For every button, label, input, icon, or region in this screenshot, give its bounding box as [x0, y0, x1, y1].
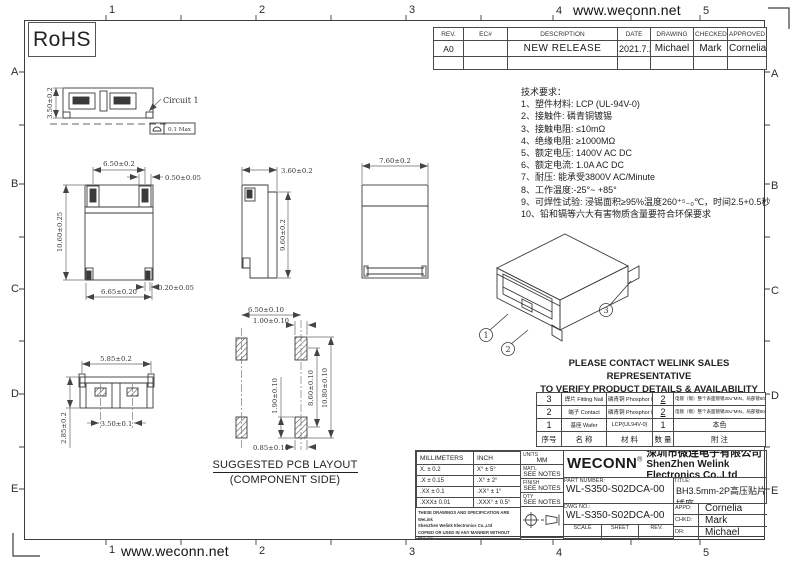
- scale-value: 1:1: [577, 537, 587, 539]
- tech-note-item: 3、接触电阻: ≤10mΩ: [521, 123, 767, 135]
- tol-col-inch: INCH: [474, 452, 522, 465]
- grid-col-label: 5: [703, 547, 709, 559]
- scale-sheet-rev-row: SCALE 1:1 SHEET 1/1 REV. A1: [564, 524, 673, 538]
- revision-empty-row: [434, 57, 767, 70]
- pcb-caption-line1: SUGGESTED PCB LAYOUT: [213, 459, 358, 473]
- revision-table: REV. EC# DESCRIPTION DATE DRAWING CHECKE…: [433, 27, 767, 70]
- grid-row-label: D: [11, 388, 19, 400]
- disclaimer: THESE DRAWINGS AND SPECIFICATION ARE WeL…: [415, 507, 521, 539]
- bom-row: 2 端子 Contact 磷青铜 Phosphor Bronze 2 电镀（锡）…: [537, 406, 766, 419]
- grid-col-label: 2: [259, 545, 265, 557]
- finish-value: SEE NOTES: [521, 485, 563, 492]
- tech-note-item: 7、耐压: 能承受3800V AC/Minute: [521, 171, 767, 183]
- tol-mm: .X ± 0.15: [417, 476, 474, 487]
- company-name-cn: 深圳市微连电子有限公司: [646, 450, 763, 459]
- tech-note-item: 5、额定电压: 1400V AC DC: [521, 147, 767, 159]
- grid-col-label: 2: [259, 4, 265, 16]
- grid-col-label: 5: [703, 5, 709, 17]
- dr-label: DR:: [673, 527, 699, 539]
- grid-row-label: C: [771, 285, 779, 297]
- units-cell: UNITS MM: [521, 451, 563, 465]
- title-block: MILLIMETERS INCH X. ± 0.2X° ± 5° .X ± 0.…: [415, 450, 765, 537]
- ec-header: EC#: [464, 28, 508, 41]
- scale-label: SCALE: [564, 525, 601, 531]
- company-header: WECONN® 深圳市微连电子有限公司 ShenZhen Welink Elec…: [563, 450, 767, 478]
- tolerance-table-cell: MILLIMETERS INCH X. ± 0.2X° ± 5° .X ± 0.…: [415, 450, 521, 508]
- part-number-value: WL-S350-S02DCA-00: [564, 484, 673, 495]
- grid-row-label: C: [11, 283, 19, 295]
- bom-table: 3 焊片 Fitting Nail 磷青铜 Phosphor Bronze 2 …: [536, 392, 766, 447]
- rev-value: A1: [652, 537, 661, 539]
- matl-value: SEE NOTES: [521, 471, 563, 478]
- tol-inch: X° ± 5°: [474, 465, 522, 476]
- matl-cell: MAT'L SEE NOTES: [521, 465, 563, 479]
- bom-row: 1 基座 Wafer LCP(UL94V-0) 1 本色: [537, 419, 766, 432]
- bom-no: 2: [537, 406, 562, 419]
- bom-remark-header: 附 注: [674, 432, 766, 447]
- grid-row-label: E: [11, 483, 18, 495]
- dwg-no-cell: DWG NO.: WL-S350-S02DCA-00 SCALE 1:1 SHE…: [563, 503, 674, 539]
- approved-value: Cornelia: [728, 41, 767, 57]
- qty-value: SEE NOTES: [521, 499, 563, 506]
- grid-col-label: 4: [556, 5, 562, 17]
- grid-row-label: B: [771, 180, 778, 192]
- tech-note-item: 6、额定电流: 1.0A AC DC: [521, 159, 767, 171]
- dwg-no-value: WL-S350-S02DCA-00: [564, 510, 673, 521]
- rev-header: REV.: [434, 28, 464, 41]
- grid-col-label: 4: [556, 547, 562, 559]
- appd-label: APPD:: [673, 503, 699, 514]
- tech-note-item: 2、接触件: 磷青铜镀锡: [521, 110, 767, 122]
- grid-row-label: E: [771, 485, 778, 497]
- tol-col-mm: MILLIMETERS: [417, 452, 474, 465]
- bom-no: 1: [537, 419, 562, 432]
- rohs-badge: RoHS: [28, 22, 96, 57]
- disclaimer-line: THESE DRAWINGS AND SPECIFICATION ARE WeL…: [418, 510, 518, 523]
- title-cell: TITLE: BH3.5mm-2P高压贴片插座: [673, 477, 767, 504]
- units-column: UNITS MM MAT'L SEE NOTES FINISH SEE NOTE…: [520, 450, 564, 538]
- bom-qty: 1: [653, 419, 674, 432]
- bom-remark: 电镀（锡）整个表面镀锡30u″MIN，局部镀80u″MIN: [674, 393, 766, 406]
- tech-note-item: 8、工作温度:-25°~ +85°: [521, 184, 767, 196]
- revision-header-row: REV. EC# DESCRIPTION DATE DRAWING CHECKE…: [434, 28, 767, 41]
- bom-name: 端子 Contact: [562, 406, 607, 419]
- dr-value: Michael: [699, 527, 767, 539]
- bom-remark: 本色: [674, 419, 766, 432]
- rev-label: REV.: [639, 525, 674, 531]
- company-name-en: ShenZhen Welink Electronics Co.,Ltd: [646, 459, 763, 479]
- approved-header: APPROVED: [728, 28, 767, 41]
- technical-notes: 技术要求： 1、塑件材料: LCP (UL-94V-0) 2、接触件: 磷青铜镀…: [521, 86, 767, 220]
- qty-cell: QTY SEE NOTES: [521, 493, 563, 507]
- bom-name-header: 名 称: [562, 432, 607, 447]
- tech-note-item: 9、可焊性试验: 浸锡面积≥95%温度260⁺⁵₋₀℃，时间2.5+0.5秒: [521, 196, 767, 208]
- third-angle-projection-icon: [522, 511, 562, 529]
- grid-row-label: A: [771, 68, 778, 80]
- units-value: MM: [521, 457, 563, 464]
- sales-notice: PLEASE CONTACT WELINK SALES REPRESENTATI…: [532, 357, 766, 396]
- tolerance-table: MILLIMETERS INCH X. ± 0.2X° ± 5° .X ± 0.…: [416, 451, 521, 508]
- disclaimer-line: COPIED OR USED IN ANY MANNER WITHOUT WeL…: [418, 530, 518, 539]
- grid-row-label: A: [11, 66, 18, 78]
- tech-notes-title: 技术要求：: [521, 86, 767, 98]
- finish-cell: FINISH SEE NOTES: [521, 479, 563, 493]
- bom-qty: 2: [653, 406, 674, 419]
- part-number-cell: PART NUMBER: WL-S350-S02DCA-00: [563, 477, 674, 504]
- grid-col-label: 1: [109, 4, 115, 16]
- signatures: APPD: Cornelia CHKD: Mark DR: Michael: [673, 503, 767, 539]
- bom-no: 3: [537, 393, 562, 406]
- registered-mark-icon: ®: [637, 457, 642, 464]
- rev-value: A0: [434, 41, 464, 57]
- date-header: DATE: [618, 28, 651, 41]
- grid-col-label: 3: [409, 4, 415, 16]
- tech-note-item: 4、绝缘电阻: ≥1000MΩ: [521, 135, 767, 147]
- bom-row: 3 焊片 Fitting Nail 磷青铜 Phosphor Bronze 2 …: [537, 393, 766, 406]
- bom-material: 磷青铜 Phosphor Bronze: [607, 393, 653, 406]
- weconn-url-bottom: www.weconn.net: [121, 543, 229, 559]
- bom-header-row: 序号 名 称 材 料 数 量 附 注: [537, 432, 766, 447]
- brand-logo: WECONN®: [567, 455, 642, 473]
- bom-material: 磷青铜 Phosphor Bronze: [607, 406, 653, 419]
- disclaimer-line: ShenZhen Welink Electronics Co.,Ltd: [418, 523, 518, 530]
- tech-note-item: 1、塑件材料: LCP (UL-94V-0): [521, 98, 767, 110]
- title-value: BH3.5mm-2P高压贴片插座: [674, 484, 766, 504]
- appd-value: Cornelia: [699, 503, 767, 514]
- bom-name: 焊片 Fitting Nail: [562, 393, 607, 406]
- ec-value: [464, 41, 508, 57]
- weconn-url-top: www.weconn.net: [573, 2, 681, 18]
- drawing-sheet: 1 2 3 4 5 1 2 3 4 5 A B C D E A B C D E …: [0, 0, 800, 565]
- chkd-value: Mark: [699, 515, 767, 526]
- date-value: 2021.7.25: [618, 41, 651, 57]
- bom-remark: 电镀（锡）整个表面镀锡30u″MIN，局部镀80u″MIN: [674, 406, 766, 419]
- bom-qty: 2: [653, 393, 674, 406]
- tol-inch: .X° ± 2°: [474, 476, 522, 487]
- revision-row: A0 NEW RELEASE 2021.7.25 Michael Mark Co…: [434, 41, 767, 57]
- sheet-label: SHEET: [602, 525, 638, 531]
- tol-inch: .XX° ± 1°: [474, 487, 522, 498]
- bom-material-header: 材 料: [607, 432, 653, 447]
- projection-symbol-cell: [521, 511, 563, 534]
- grid-row-label: B: [11, 178, 18, 190]
- chkd-label: CHKD:: [673, 515, 699, 526]
- tol-mm: X. ± 0.2: [417, 465, 474, 476]
- brand-name: WECONN: [567, 455, 637, 472]
- bom-material: LCP(UL94V-0): [607, 419, 653, 432]
- drawing-header: DRAWING: [651, 28, 694, 41]
- grid-row-label: D: [771, 390, 779, 402]
- grid-col-label: 3: [409, 546, 415, 558]
- grid-col-label: 1: [109, 544, 115, 556]
- pcb-layout-caption: SUGGESTED PCB LAYOUT (COMPONENT SIDE): [210, 459, 360, 486]
- checked-header: CHECKED: [694, 28, 728, 41]
- description-header: DESCRIPTION: [508, 28, 618, 41]
- bom-no-header: 序号: [537, 432, 562, 447]
- bom-name: 基座 Wafer: [562, 419, 607, 432]
- bom-qty-header: 数 量: [653, 432, 674, 447]
- sheet-value: 1/1: [615, 537, 625, 539]
- checked-value: Mark: [694, 41, 728, 57]
- tol-mm: .XX ± 0.1: [417, 487, 474, 498]
- sales-notice-line1: PLEASE CONTACT WELINK SALES REPRESENTATI…: [532, 357, 766, 383]
- pcb-caption-line2: (COMPONENT SIDE): [210, 474, 360, 486]
- description-value: NEW RELEASE: [508, 41, 618, 57]
- drawing-value: Michael: [651, 41, 694, 57]
- tech-note-item: 10、铅和镉等六大有害物质含量要符合环保要求: [521, 208, 767, 220]
